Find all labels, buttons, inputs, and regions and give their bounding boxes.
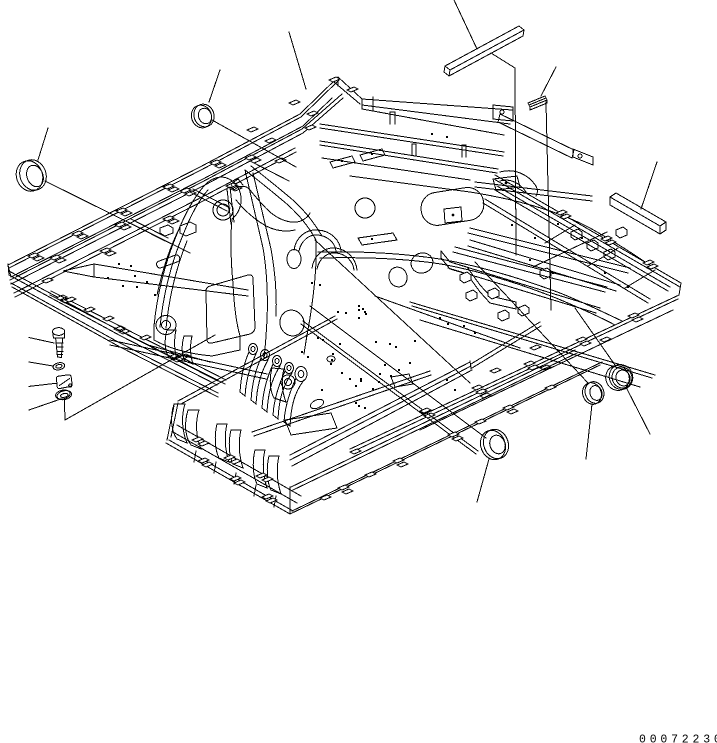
svg-text:00072230: 00072230 bbox=[639, 734, 717, 743]
